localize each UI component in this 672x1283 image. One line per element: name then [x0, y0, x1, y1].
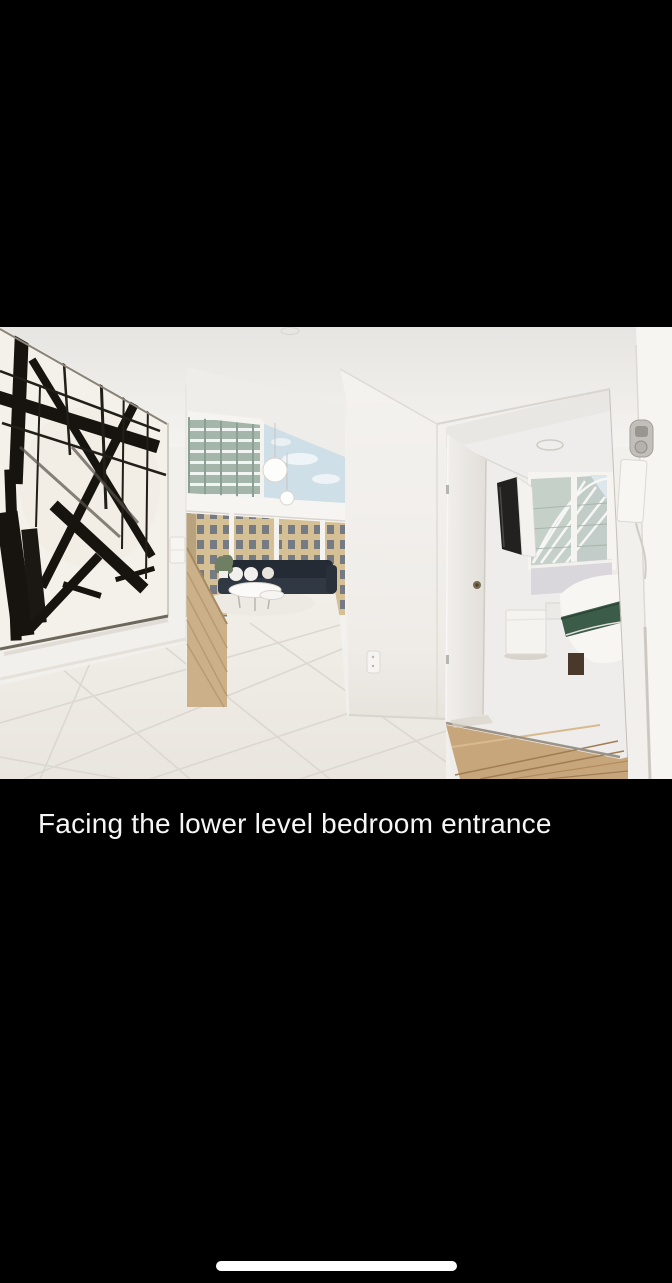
listing-photo-image	[0, 327, 672, 779]
listing-photo[interactable]	[0, 327, 672, 779]
home-indicator[interactable]	[216, 1261, 457, 1271]
photo-viewer-screen: Facing the lower level bedroom entrance	[0, 0, 672, 1283]
photo-caption: Facing the lower level bedroom entrance	[38, 806, 638, 842]
